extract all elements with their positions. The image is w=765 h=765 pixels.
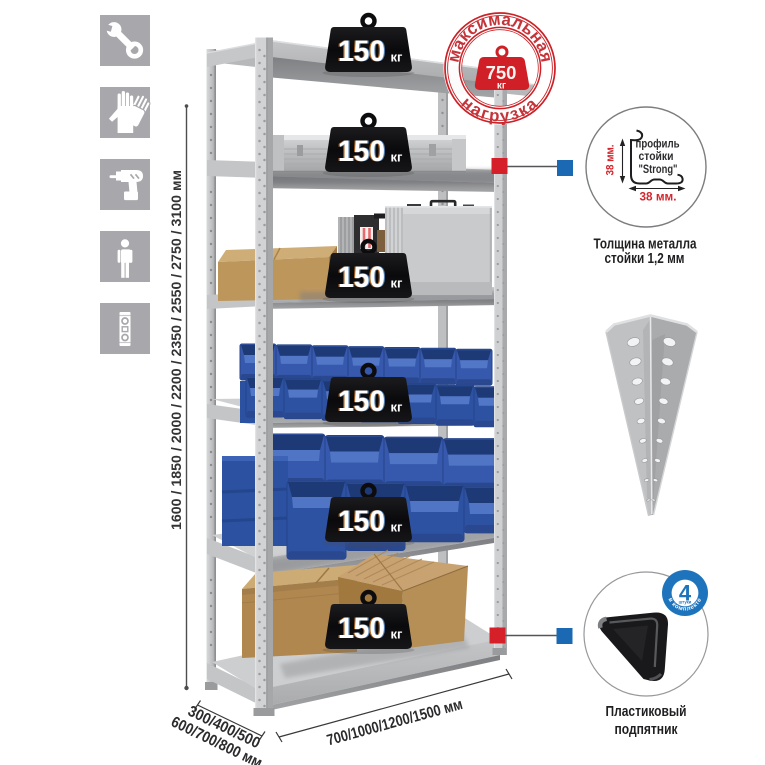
svg-text:1600 / 1850 / 2000 / 2200 / 23: 1600 / 1850 / 2000 / 2200 / 2350 / 2550 … (168, 170, 184, 530)
svg-text:Пластиковый: Пластиковый (606, 704, 687, 720)
svg-text:"Strong": "Strong" (639, 162, 678, 176)
svg-text:стойки 1,2 мм: стойки 1,2 мм (605, 251, 685, 267)
svg-text:кг: кг (391, 50, 404, 65)
svg-text:штуки: штуки (679, 600, 692, 605)
svg-text:150: 150 (338, 135, 385, 168)
svg-text:стойки: стойки (639, 149, 674, 163)
svg-text:кг: кг (391, 400, 404, 415)
svg-text:150: 150 (338, 385, 385, 418)
svg-text:кг: кг (497, 81, 506, 92)
svg-text:кг: кг (391, 276, 404, 291)
svg-text:150: 150 (338, 261, 385, 294)
svg-text:150: 150 (338, 612, 385, 645)
svg-text:подпятник: подпятник (615, 722, 679, 738)
svg-text:кг: кг (391, 627, 404, 642)
svg-text:38 мм.: 38 мм. (605, 145, 617, 176)
svg-text:150: 150 (338, 35, 385, 68)
svg-text:700/1000/1200/1500 мм: 700/1000/1200/1500 мм (325, 696, 465, 749)
svg-text:кг: кг (391, 150, 404, 165)
svg-text:38 мм.: 38 мм. (640, 190, 677, 204)
svg-text:кг: кг (391, 520, 404, 535)
svg-text:150: 150 (338, 505, 385, 538)
